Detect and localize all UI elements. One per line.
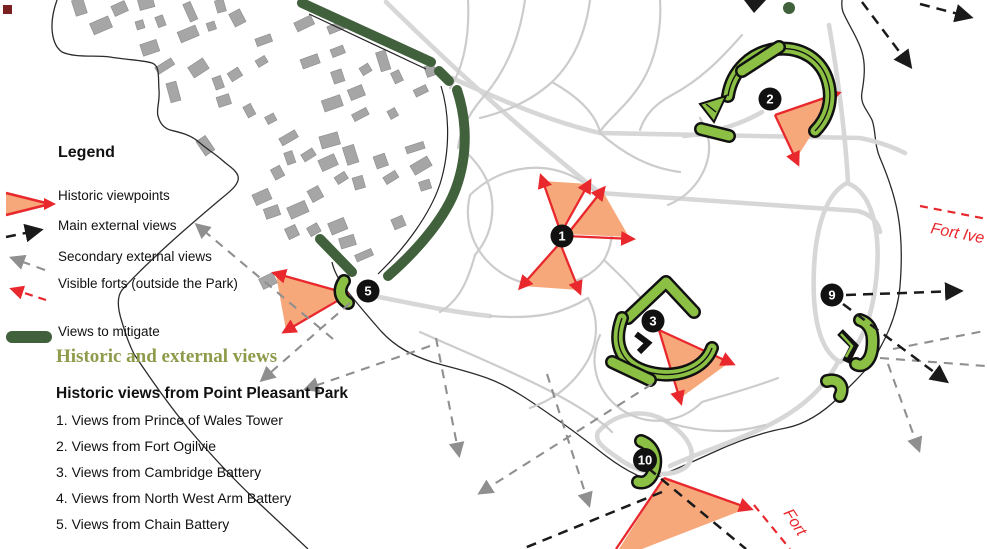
building-footprint	[418, 179, 431, 191]
list-item-5: 5. Views from Chain Battery	[56, 516, 229, 532]
svg-text:1: 1	[558, 229, 565, 244]
building-footprint	[284, 224, 299, 239]
building-footprint	[212, 75, 225, 90]
building-footprint	[321, 95, 343, 112]
legend-item-secondary-external-views: Secondary external views	[58, 249, 212, 264]
building-footprint	[71, 0, 87, 16]
viewpoint-marker-3: 3	[642, 310, 665, 333]
building-footprint	[216, 94, 232, 108]
fort-bottom-label: Fort	[780, 506, 810, 540]
viewpoint-markers: 1 2 3 5 9 10	[357, 88, 844, 473]
building-footprint	[301, 148, 317, 162]
building-footprint	[330, 45, 346, 58]
viewpoint-marker-5: 5	[357, 280, 380, 303]
viewpoint-marker-9: 9	[821, 284, 844, 307]
building-footprint	[137, 0, 155, 10]
viewpoint-marker-2: 2	[759, 88, 782, 111]
building-footprint	[111, 1, 129, 17]
building-footprint	[405, 141, 425, 154]
building-footprint	[300, 54, 320, 69]
building-footprint	[135, 20, 145, 30]
svg-text:5: 5	[364, 284, 371, 299]
building-footprint	[352, 175, 366, 190]
building-footprint	[307, 186, 324, 203]
legend-icons	[6, 192, 56, 337]
building-footprint	[390, 70, 403, 84]
building-footprint	[318, 154, 339, 172]
top-arrowhead	[744, 0, 766, 13]
legend-title: Legend	[58, 144, 115, 162]
building-footprint	[383, 170, 399, 184]
building-footprint	[227, 67, 243, 82]
main-external-views-icon	[6, 230, 40, 237]
list-item-4: 4. Views from North West Arm Battery	[56, 490, 291, 506]
building-footprint	[229, 9, 246, 27]
fort-ives-label: Fort Ive	[929, 220, 986, 247]
building-footprint	[375, 50, 390, 72]
building-footprint	[347, 85, 365, 101]
building-footprint	[89, 16, 112, 35]
building-footprint	[328, 217, 348, 235]
building-footprint	[214, 0, 226, 13]
building-footprint	[279, 130, 299, 146]
building-footprint	[155, 15, 166, 28]
building-footprint	[259, 272, 278, 289]
section-heading: Historic and external views	[56, 346, 277, 368]
building-footprint	[355, 248, 374, 262]
secondary-external-views-icon	[12, 258, 45, 270]
viewpoint-marker-10: 10	[633, 448, 657, 472]
historic-viewpoint-icon	[6, 192, 56, 216]
building-footprint	[177, 25, 199, 43]
small-red-building	[3, 5, 12, 14]
building-footprint	[265, 113, 277, 125]
building-footprint	[351, 107, 369, 121]
building-footprint	[270, 165, 285, 180]
list-item-3: 3. Views from Cambridge Battery	[56, 464, 261, 480]
section-subheading: Historic views from Point Pleasant Park	[56, 385, 348, 403]
legend-item-visible-forts: Visible forts (outside the Park)	[58, 276, 240, 292]
building-footprint	[188, 58, 210, 78]
legend-item-views-to-mitigate: Views to mitigate	[58, 324, 160, 339]
visible-forts-icon	[12, 289, 46, 300]
building-footprint	[338, 234, 356, 249]
building-footprint	[252, 188, 272, 205]
svg-text:10: 10	[638, 453, 652, 468]
building-footprint	[342, 144, 359, 165]
building-footprint	[294, 15, 315, 32]
visible-fort-arrows	[754, 206, 987, 549]
building-footprint	[183, 1, 198, 22]
building-footprint	[287, 200, 309, 219]
building-footprint	[255, 55, 268, 67]
svg-text:2: 2	[766, 92, 773, 107]
list-item-2: 2. Views from Fort Ogilvie	[56, 438, 216, 454]
legend-item-main-external-views: Main external views	[58, 218, 177, 233]
building-footprint	[166, 81, 181, 103]
building-footprint	[413, 85, 428, 98]
building-footprint	[331, 69, 345, 84]
mitigate-dot	[783, 2, 795, 14]
svg-text:9: 9	[828, 288, 835, 303]
building-footprint	[319, 132, 341, 149]
svg-text:3: 3	[649, 314, 656, 329]
building-footprint	[334, 171, 348, 184]
building-footprint	[387, 107, 399, 119]
building-footprint	[373, 153, 389, 169]
park-views-map: 1 2 3 5 9 10 Fort Ive Fort Legend Histor…	[0, 0, 987, 549]
list-item-1: 1. Views from Prince of Wales Tower	[56, 412, 283, 428]
building-footprint	[359, 63, 372, 76]
building-footprint	[391, 215, 406, 230]
building-footprint	[243, 103, 256, 118]
building-footprint	[410, 156, 432, 175]
building-footprint	[255, 34, 273, 47]
building-footprint	[140, 39, 160, 56]
legend-item-historic-viewpoints: Historic viewpoints	[58, 188, 170, 203]
viewpoint-marker-1: 1	[551, 225, 574, 248]
building-footprint	[206, 21, 216, 31]
building-footprint	[284, 151, 296, 166]
fort-chain-battery	[341, 281, 348, 303]
building-footprint	[263, 205, 281, 220]
